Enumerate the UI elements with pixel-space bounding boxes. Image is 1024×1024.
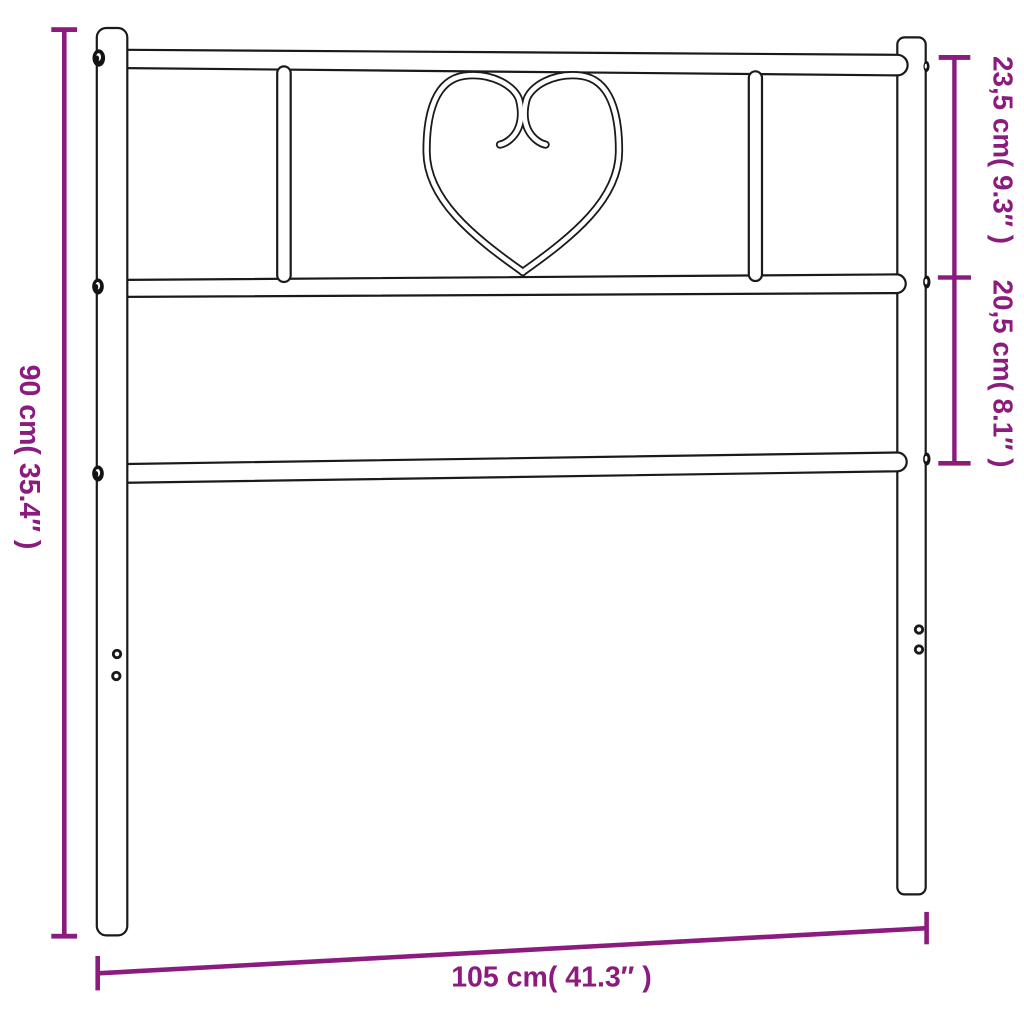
svg-text:105 cm( 41.3″ ): 105 cm( 41.3″ ) bbox=[451, 961, 652, 993]
svg-text:23,5 cm( 9.3″ ): 23,5 cm( 9.3″ ) bbox=[987, 56, 1018, 244]
svg-text:90 cm( 35.4″ ): 90 cm( 35.4″ ) bbox=[13, 365, 45, 550]
svg-text:20,5 cm( 8.1″ ): 20,5 cm( 8.1″ ) bbox=[987, 280, 1018, 468]
